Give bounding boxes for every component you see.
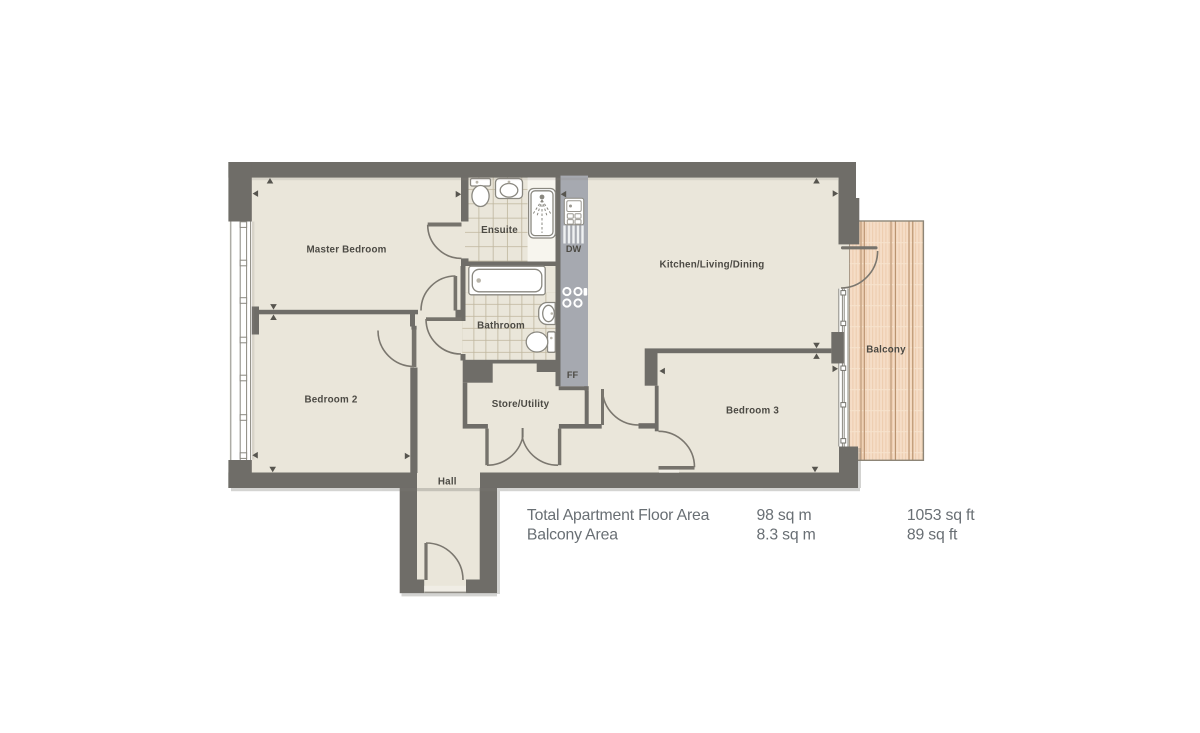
svg-text:Hall: Hall	[438, 476, 457, 487]
svg-text:1053 sq ft: 1053 sq ft	[907, 507, 975, 524]
svg-text:DW: DW	[566, 244, 582, 254]
svg-text:FF: FF	[567, 370, 579, 380]
svg-text:Bedroom 2: Bedroom 2	[305, 394, 358, 405]
svg-text:Bedroom 3: Bedroom 3	[726, 405, 779, 416]
svg-text:Bathroom: Bathroom	[477, 320, 525, 331]
svg-text:Balcony: Balcony	[866, 344, 906, 355]
svg-text:Balcony Area: Balcony Area	[527, 527, 618, 544]
svg-text:Kitchen/Living/Dining: Kitchen/Living/Dining	[660, 259, 765, 270]
svg-text:Master Bedroom: Master Bedroom	[306, 245, 386, 256]
svg-text:98 sq m: 98 sq m	[757, 507, 812, 524]
svg-text:Store/Utility: Store/Utility	[492, 399, 550, 410]
svg-text:Total Apartment Floor Area: Total Apartment Floor Area	[527, 507, 710, 524]
svg-text:Ensuite: Ensuite	[481, 225, 518, 236]
svg-text:89 sq ft: 89 sq ft	[907, 527, 958, 544]
svg-text:8.3 sq m: 8.3 sq m	[757, 527, 816, 544]
